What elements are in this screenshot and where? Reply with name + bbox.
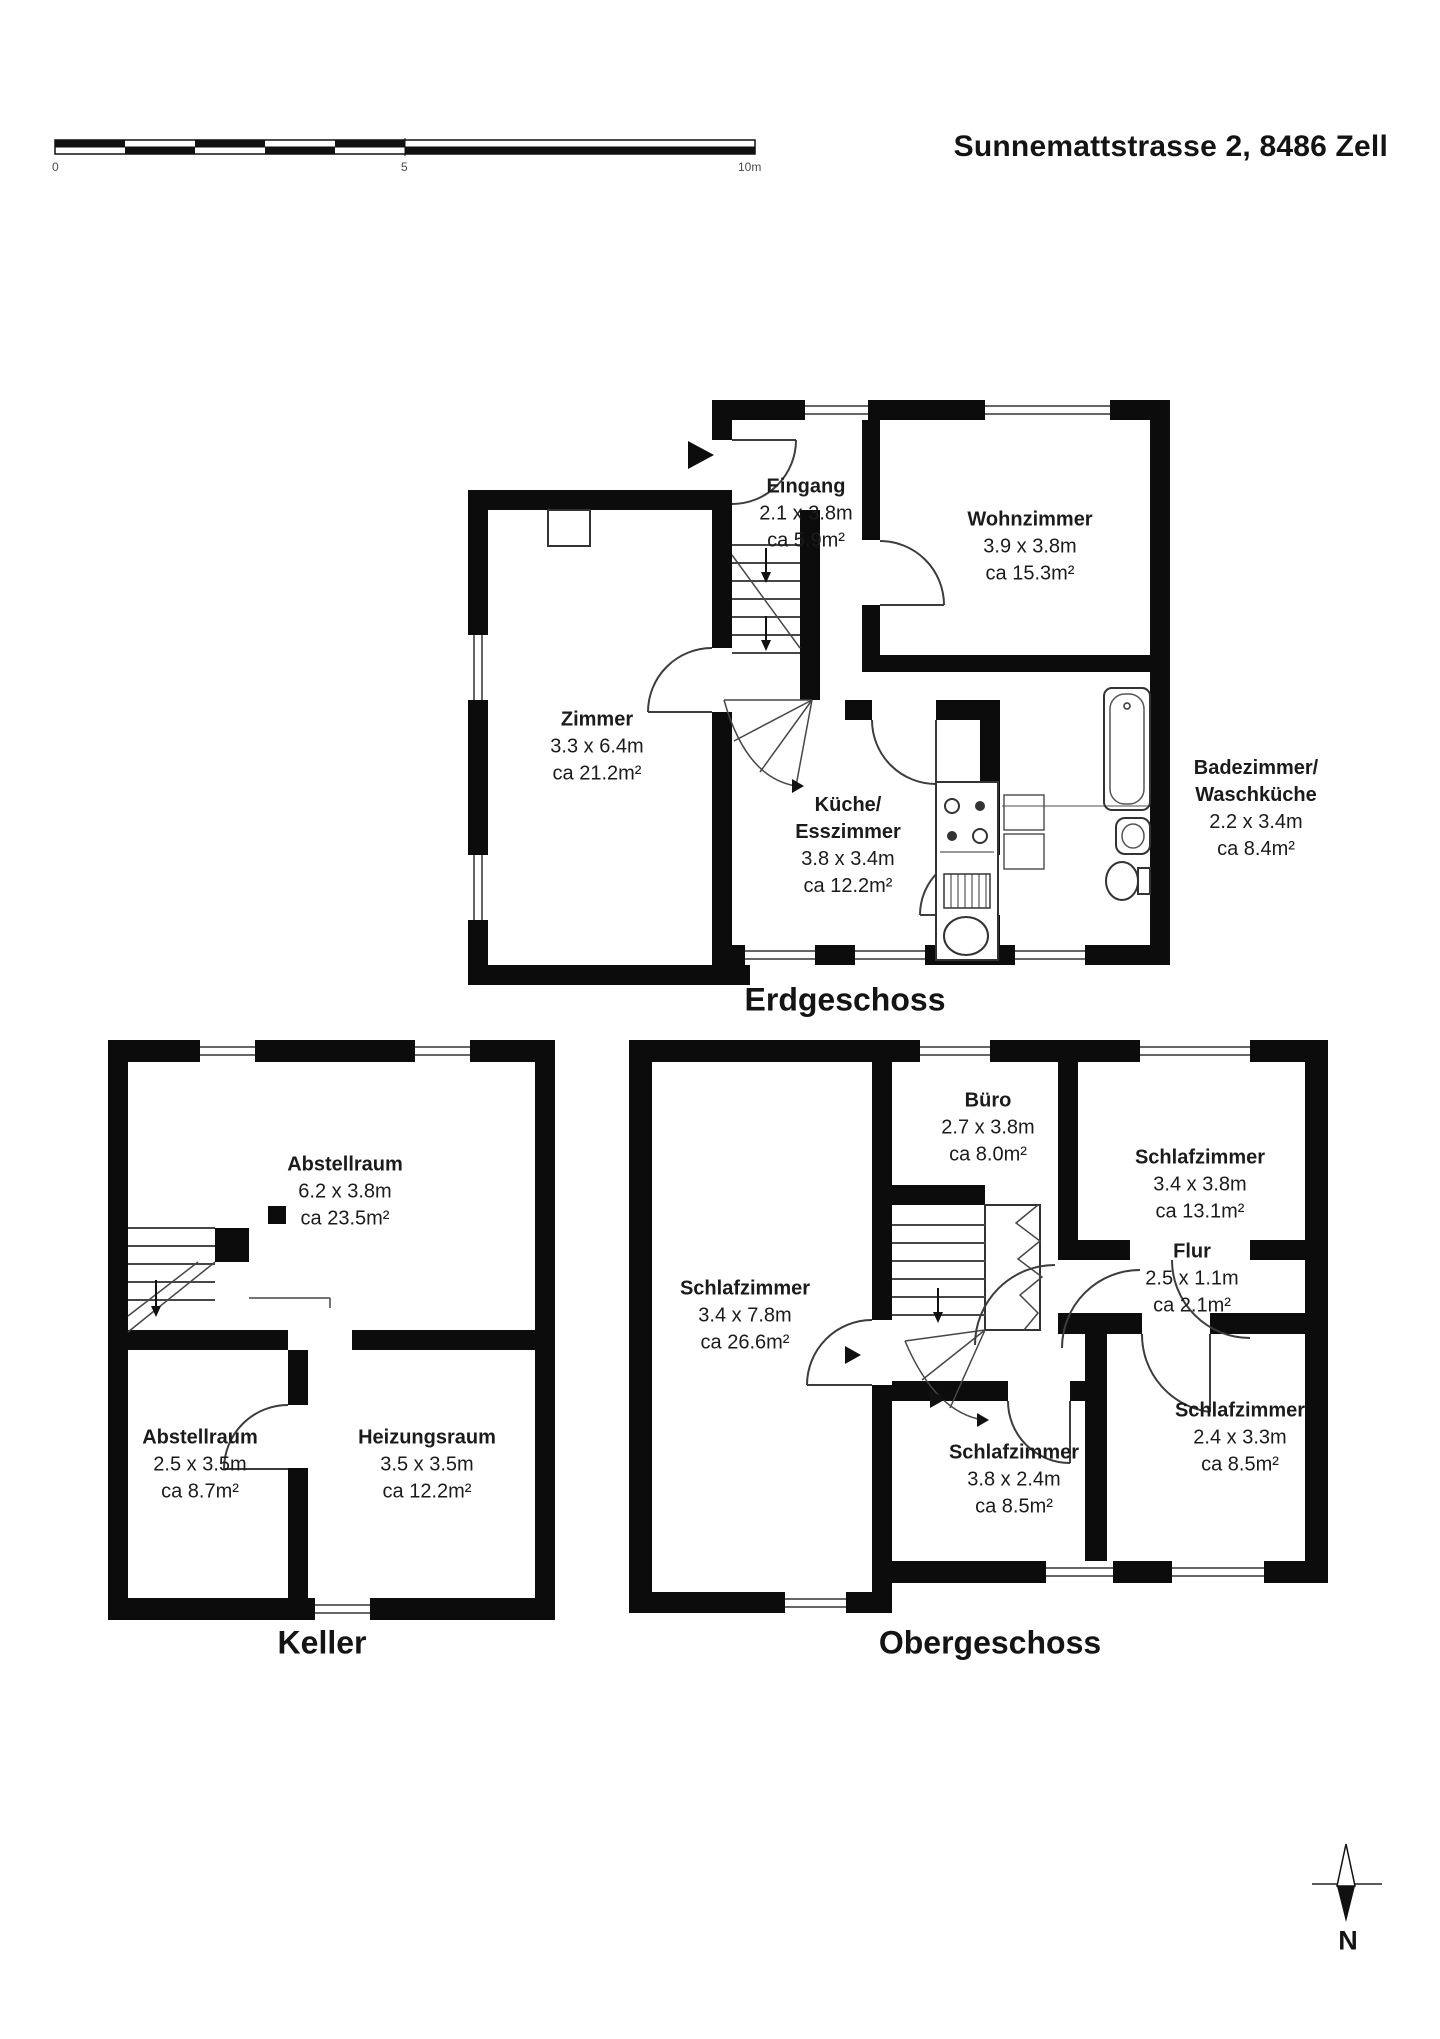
room-name: Büro <box>941 1088 1034 1115</box>
room-area: ca 12.2m² <box>358 1479 496 1506</box>
room-name: Schlafzimmer <box>949 1440 1079 1467</box>
room-area: ca 8.4m² <box>1194 836 1319 863</box>
floor-title-obergeschoss: Obergeschoss <box>879 1625 1101 1662</box>
compass-north-label: N <box>1338 1926 1358 1957</box>
floorplan-drawing <box>0 0 1440 2039</box>
room-label-schlafzimmer-26: Schlafzimmer 3.4 x 7.8m ca 26.6m² <box>680 1276 810 1357</box>
floor-title-keller: Keller <box>278 1625 367 1662</box>
room-label-wohnzimmer: Wohnzimmer 3.9 x 3.8m ca 15.3m² <box>967 507 1092 588</box>
erdgeschoss-stair-arrows <box>761 572 804 793</box>
room-dims: 3.3 x 6.4m <box>550 734 643 761</box>
room-dims: 2.1 x 3.8m <box>759 501 852 528</box>
room-name: Wohnzimmer <box>967 507 1092 534</box>
room-dims: 2.4 x 3.3m <box>1175 1425 1305 1452</box>
room-area: ca 8.5m² <box>949 1494 1079 1521</box>
room-area: ca 23.5m² <box>287 1206 403 1233</box>
room-area: ca 15.3m² <box>967 561 1092 588</box>
scale-label-5: 5 <box>401 160 408 174</box>
scale-bar <box>55 138 755 156</box>
room-area: ca 2.1m² <box>1145 1293 1238 1320</box>
room-name: Badezimmer/ Waschküche <box>1194 755 1319 809</box>
scale-label-0: 0 <box>52 160 59 174</box>
room-label-abstellraum-gross: Abstellraum 6.2 x 3.8m ca 23.5m² <box>287 1152 403 1233</box>
room-name: Eingang <box>759 474 852 501</box>
scale-label-10: 10m <box>738 160 761 174</box>
kitchen-unit <box>936 782 998 960</box>
room-label-zimmer: Zimmer 3.3 x 6.4m ca 21.2m² <box>550 707 643 788</box>
room-area: ca 5.9m² <box>759 528 852 555</box>
room-label-badezimmer-waschkueche: Badezimmer/ Waschküche 2.2 x 3.4m ca 8.4… <box>1194 755 1319 863</box>
room-label-heizungsraum: Heizungsraum 3.5 x 3.5m ca 12.2m² <box>358 1425 496 1506</box>
floorplan-page: Sunnemattstrasse 2, 8486 Zell 0 5 10m Ei… <box>0 0 1440 2039</box>
room-dims: 3.8 x 3.4m <box>795 846 901 873</box>
room-name: Flur <box>1145 1239 1238 1266</box>
room-label-schlafzimmer-13: Schlafzimmer 3.4 x 3.8m ca 13.1m² <box>1135 1145 1265 1226</box>
room-area: ca 8.0m² <box>941 1142 1034 1169</box>
keller-plan <box>108 1040 555 1620</box>
bathroom-fixtures <box>1002 688 1150 900</box>
room-label-buero: Büro 2.7 x 3.8m ca 8.0m² <box>941 1088 1034 1169</box>
room-dims: 6.2 x 3.8m <box>287 1179 403 1206</box>
room-name: Abstellraum <box>142 1425 258 1452</box>
room-name: Zimmer <box>550 707 643 734</box>
erdgeschoss-stairs <box>724 545 812 786</box>
room-area: ca 13.1m² <box>1135 1199 1265 1226</box>
room-label-kueche-esszimmer: Küche/ Esszimmer 3.8 x 3.4m ca 12.2m² <box>795 792 901 900</box>
room-dims: 2.5 x 3.5m <box>142 1452 258 1479</box>
room-area: ca 8.7m² <box>142 1479 258 1506</box>
room-area: ca 26.6m² <box>680 1330 810 1357</box>
room-label-schlafzimmer-85b: Schlafzimmer 2.4 x 3.3m ca 8.5m² <box>1175 1398 1305 1479</box>
room-dims: 3.9 x 3.8m <box>967 534 1092 561</box>
room-name: Schlafzimmer <box>1175 1398 1305 1425</box>
room-dims: 2.7 x 3.8m <box>941 1115 1034 1142</box>
room-area: ca 8.5m² <box>1175 1452 1305 1479</box>
room-label-eingang: Eingang 2.1 x 3.8m ca 5.9m² <box>759 474 852 555</box>
room-label-schlafzimmer-85a: Schlafzimmer 3.8 x 2.4m ca 8.5m² <box>949 1440 1079 1521</box>
room-area: ca 12.2m² <box>795 873 901 900</box>
entrance-arrow-icon <box>688 441 714 469</box>
floor-title-erdgeschoss: Erdgeschoss <box>745 982 946 1019</box>
room-dims: 3.4 x 7.8m <box>680 1303 810 1330</box>
page-title: Sunnemattstrasse 2, 8486 Zell <box>954 130 1388 164</box>
room-dims: 3.5 x 3.5m <box>358 1452 496 1479</box>
chimney-niche <box>548 510 590 546</box>
room-name: Heizungsraum <box>358 1425 496 1452</box>
room-dims: 3.8 x 2.4m <box>949 1467 1079 1494</box>
room-name: Abstellraum <box>287 1152 403 1179</box>
room-area: ca 21.2m² <box>550 761 643 788</box>
room-dims: 3.4 x 3.8m <box>1135 1172 1265 1199</box>
room-name: Küche/ Esszimmer <box>795 792 901 846</box>
room-name: Schlafzimmer <box>1135 1145 1265 1172</box>
keller-walls <box>108 1040 555 1620</box>
room-dims: 2.5 x 1.1m <box>1145 1266 1238 1293</box>
room-label-flur: Flur 2.5 x 1.1m ca 2.1m² <box>1145 1239 1238 1320</box>
room-dims: 2.2 x 3.4m <box>1194 809 1319 836</box>
north-arrow-icon <box>1312 1844 1382 1922</box>
room-name: Schlafzimmer <box>680 1276 810 1303</box>
room-label-abstellraum-klein: Abstellraum 2.5 x 3.5m ca 8.7m² <box>142 1425 258 1506</box>
